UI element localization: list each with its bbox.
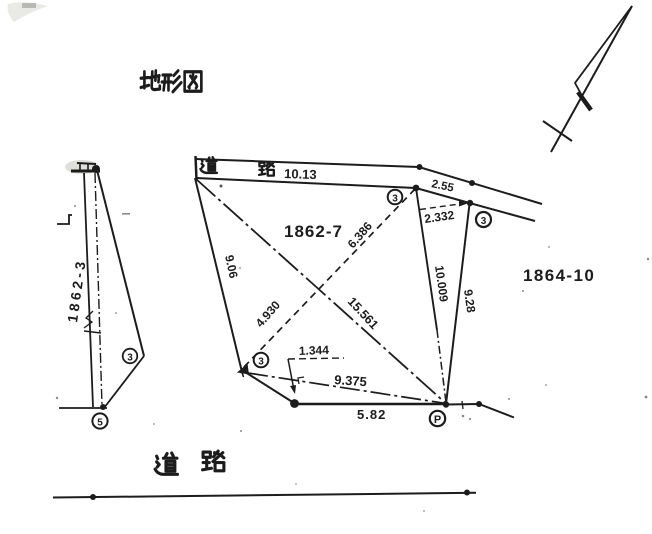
svg-text:3: 3: [258, 357, 264, 368]
svg-text:1.344: 1.344: [299, 343, 330, 358]
svg-text:9.375: 9.375: [334, 372, 368, 389]
svg-text:3: 3: [127, 353, 133, 364]
svg-text:5: 5: [97, 418, 103, 429]
svg-text:1862-7: 1862-7: [284, 222, 343, 241]
svg-text:5.82: 5.82: [357, 407, 386, 422]
svg-text:3: 3: [392, 194, 398, 205]
svg-text:1864-10: 1864-10: [523, 266, 595, 285]
svg-text:10.13: 10.13: [284, 166, 317, 182]
svg-text:3: 3: [481, 216, 487, 227]
svg-text:P: P: [434, 414, 441, 426]
